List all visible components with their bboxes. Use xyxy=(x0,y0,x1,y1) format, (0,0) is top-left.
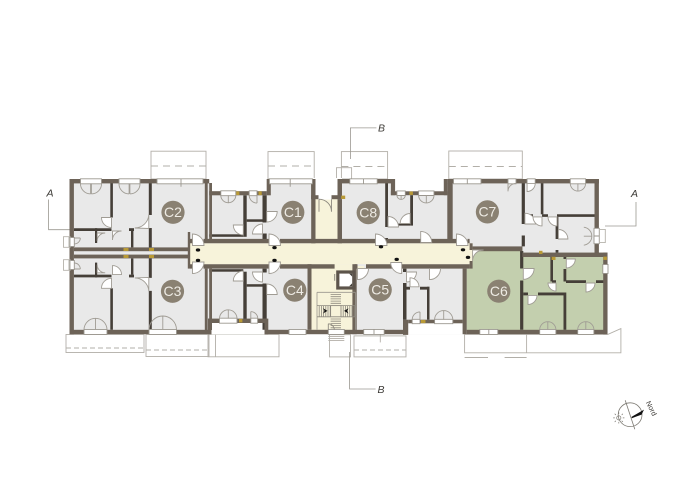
svg-text:C1: C1 xyxy=(284,204,302,220)
svg-text:C6: C6 xyxy=(490,283,508,299)
svg-text:C2: C2 xyxy=(164,204,182,220)
svg-text:C3: C3 xyxy=(164,283,182,299)
svg-text:C7: C7 xyxy=(478,204,496,220)
svg-text:B: B xyxy=(378,123,385,135)
svg-text:A: A xyxy=(630,188,638,200)
svg-text:C4: C4 xyxy=(286,282,304,298)
svg-text:A: A xyxy=(45,188,53,200)
svg-text:C5: C5 xyxy=(371,282,389,298)
svg-text:B: B xyxy=(377,384,384,396)
svg-text:C8: C8 xyxy=(359,204,377,220)
